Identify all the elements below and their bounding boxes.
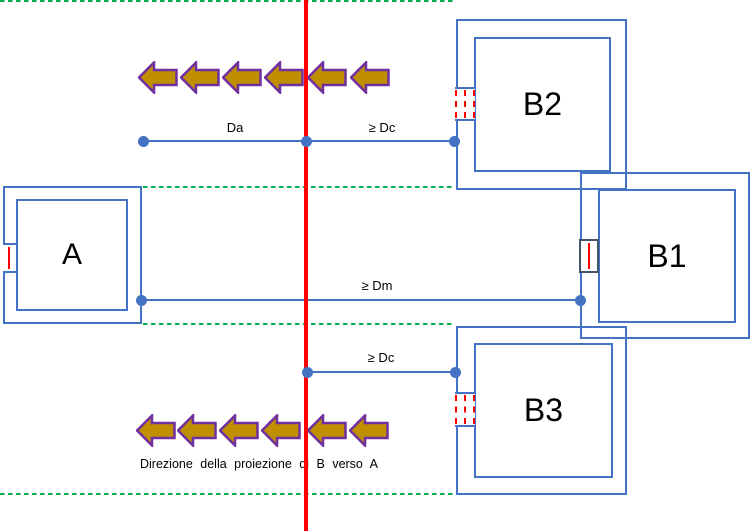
port-red-dash — [455, 90, 457, 118]
port-red-dash — [473, 90, 475, 118]
box-b1-inner: B1 — [598, 189, 736, 323]
port-red-line — [588, 243, 590, 269]
dimension-line-dm — [141, 299, 580, 301]
label-dc-top: ≥ Dc — [369, 120, 396, 135]
guide-line-bottom — [0, 493, 455, 495]
box-b2-port — [455, 87, 475, 121]
left-arrow-icon — [307, 414, 347, 447]
projection-diagram: A B2 B1 B3 Da ≥ Dc ≥ Dm ≥ Dc — [0, 0, 756, 531]
port-red-dash — [464, 90, 466, 118]
left-arrow-icon — [177, 414, 217, 447]
box-b2-label: B2 — [523, 86, 562, 123]
box-b3-port — [455, 392, 475, 427]
left-arrow-icon — [138, 61, 178, 94]
port-red-dash — [455, 395, 457, 424]
left-arrow-icon — [349, 414, 389, 447]
box-b1-label: B1 — [647, 238, 686, 275]
left-arrow-icon — [264, 61, 304, 94]
label-da: Da — [227, 120, 244, 135]
dimension-line-da — [143, 140, 306, 142]
left-arrow-icon — [307, 61, 347, 94]
left-arrow-icon — [136, 414, 176, 447]
label-dm: ≥ Dm — [362, 278, 393, 293]
projection-axis-line — [304, 0, 308, 531]
guide-line-upper-middle — [143, 186, 455, 188]
guide-line-top — [0, 0, 455, 2]
box-b3-inner: B3 — [474, 343, 613, 478]
guide-line-lower-middle — [143, 323, 455, 325]
dimension-line-dc-bottom — [307, 371, 455, 373]
box-a-port — [3, 243, 16, 273]
dim-endpoint-dot — [449, 136, 460, 147]
left-arrow-icon — [261, 414, 301, 447]
label-dc-bottom: ≥ Dc — [368, 350, 395, 365]
left-arrow-icon — [222, 61, 262, 94]
box-a-inner: A — [16, 199, 128, 311]
left-arrow-icon — [350, 61, 390, 94]
dim-endpoint-dot — [138, 136, 149, 147]
dim-endpoint-dot — [136, 295, 147, 306]
port-red-dash — [464, 395, 466, 424]
box-b1-port — [579, 239, 599, 273]
dim-endpoint-dot — [575, 295, 586, 306]
port-red-dash — [473, 395, 475, 424]
dimension-line-dc-top — [306, 140, 454, 142]
box-b2-inner: B2 — [474, 37, 611, 172]
left-arrow-icon — [219, 414, 259, 447]
dim-endpoint-dot — [301, 136, 312, 147]
dim-endpoint-dot — [450, 367, 461, 378]
left-arrow-icon — [180, 61, 220, 94]
dim-endpoint-dot — [302, 367, 313, 378]
box-b3-label: B3 — [524, 392, 563, 429]
box-a-label: A — [62, 238, 82, 272]
caption-direction-text: Direzione della proiezione di B verso A — [140, 457, 378, 471]
port-red-line — [8, 247, 10, 269]
